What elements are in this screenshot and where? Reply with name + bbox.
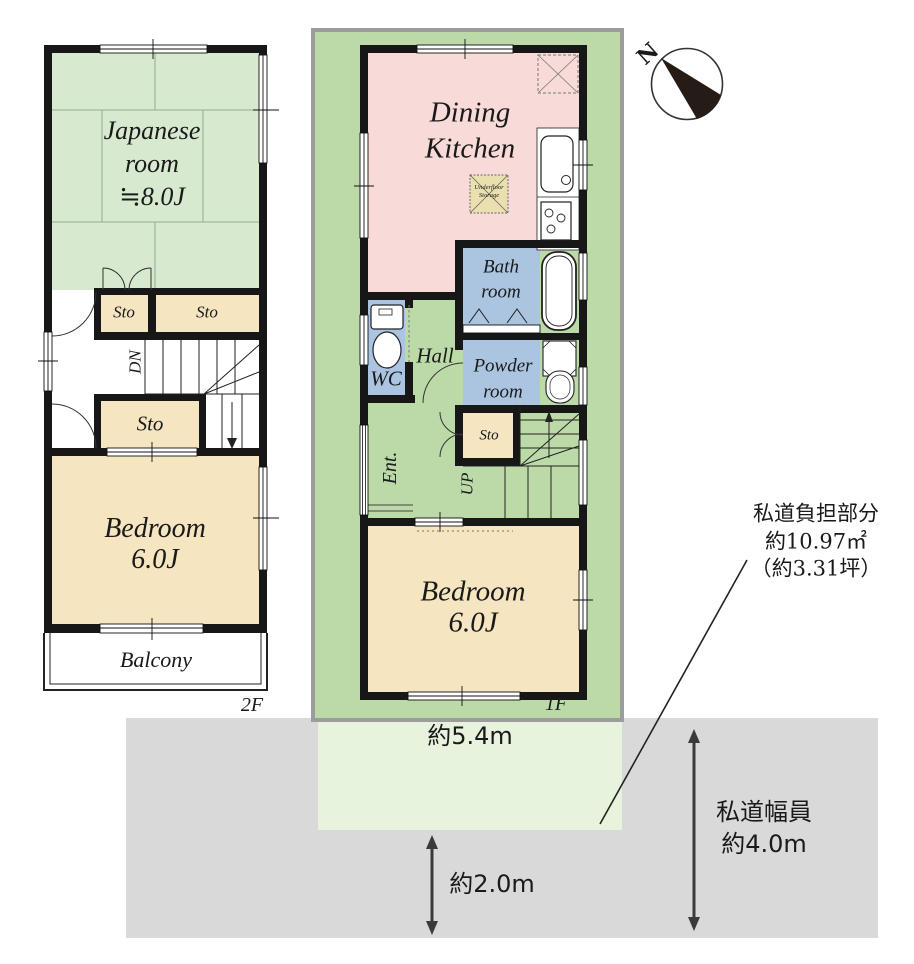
bedroom-2f-name: Bedroom: [104, 515, 206, 543]
floor2-label: 2F: [241, 695, 263, 715]
road-burden-label-line2: 約10.97㎡: [765, 532, 867, 553]
japanese-room-label-line2: room: [125, 151, 179, 177]
frontage-dimension-label: 約5.4m: [427, 724, 513, 748]
storage-2f-left-label: Sto: [113, 304, 135, 321]
underfloor-storage-label-line2: Storage: [479, 193, 499, 200]
balcony-label: Balcony: [120, 649, 192, 671]
stairs-up-label: UP: [459, 473, 476, 496]
floor1-label: 1F: [545, 694, 567, 714]
setback-dimension-label: 約2.0m: [449, 872, 535, 896]
japanese-room-label-line1: Japanese: [104, 118, 201, 144]
dining-kitchen-label-line2: Kitchen: [425, 135, 515, 164]
japanese-room-size: ≒8.0J: [119, 184, 185, 210]
down-arrow: [227, 438, 237, 449]
bedroom-1f-size: 6.0J: [448, 609, 497, 638]
road-burden-label-line1: 私道負担部分: [753, 504, 879, 525]
compass-icon: [652, 49, 723, 120]
bathroom-label-line1: Bath: [483, 258, 519, 277]
stove-icon: [541, 202, 571, 240]
road-width-label-line1: 私道幅員: [716, 800, 812, 824]
road-burden-label-line3: （約3.31坪）: [751, 559, 882, 580]
dining-kitchen-label-line1: Dining: [430, 99, 511, 128]
storage-2f-lower-label: Sto: [137, 414, 164, 435]
hall-label: Hall: [416, 346, 453, 367]
powder-room-label-line1: Powder: [473, 357, 532, 376]
storage-1f-label: Sto: [479, 429, 498, 444]
stairs-down-label: DN: [127, 350, 144, 374]
storage-2f-right-label: Sto: [196, 304, 218, 321]
entrance-door: [360, 425, 368, 515]
floorplan-page: Japanese room ≒8.0J Sto Sto DN Sto Bedro…: [0, 0, 914, 964]
powder-room-label-line2: room: [483, 383, 522, 402]
bedroom-1f-name: Bedroom: [420, 578, 525, 607]
bedroom-2f-size: 6.0J: [131, 546, 178, 574]
bath-folding-door: [463, 325, 540, 333]
underfloor-storage-label-line1: Underfloor: [474, 185, 503, 192]
road-width-label-line2: 約4.0m: [721, 832, 807, 856]
wc-label: WC: [370, 369, 402, 390]
entrance-label: Ent.: [380, 452, 400, 485]
bathroom-label-line2: room: [481, 283, 520, 302]
